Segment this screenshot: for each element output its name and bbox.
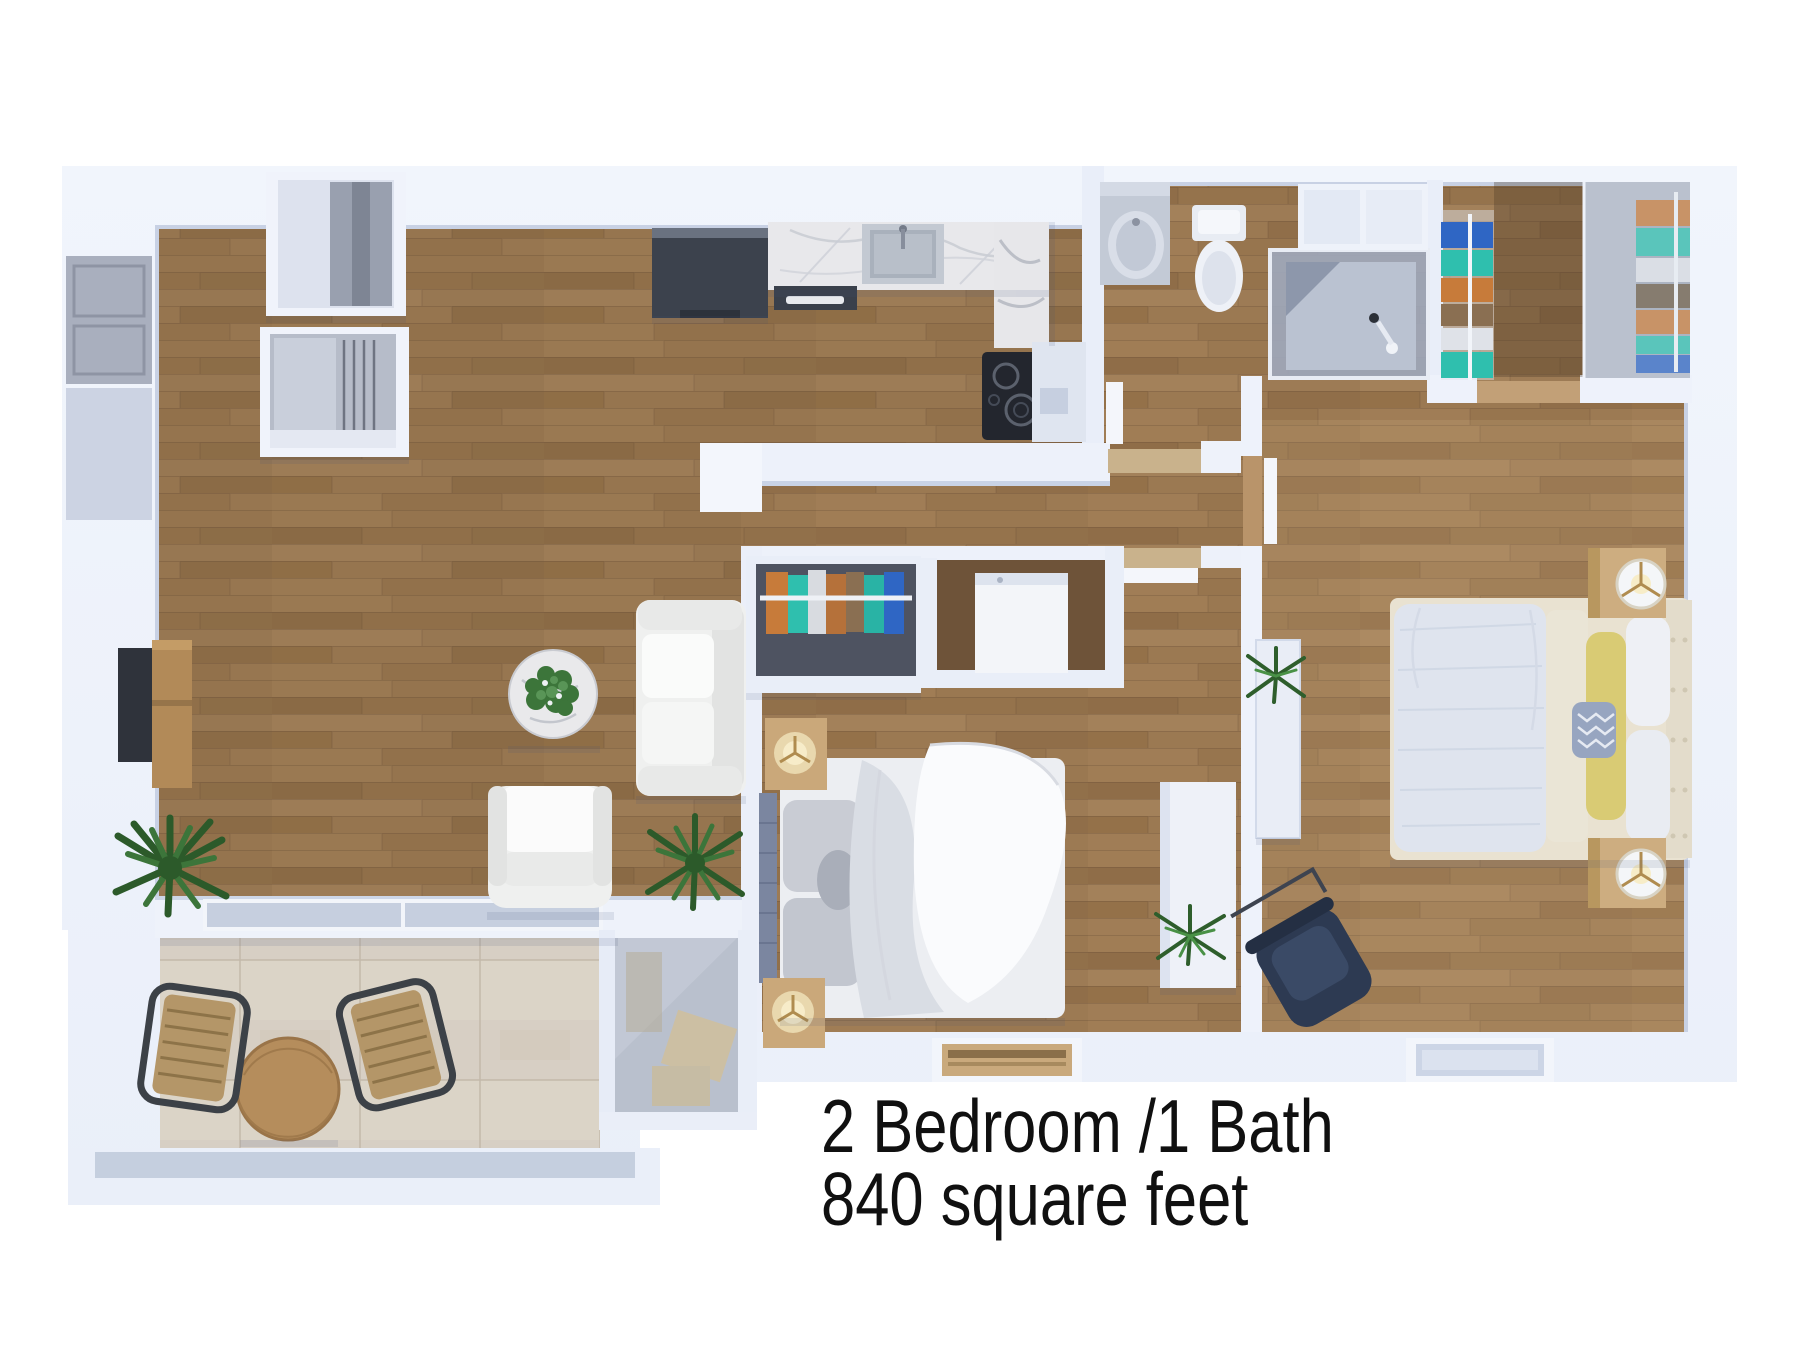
svg-text:840 square feet: 840 square feet (821, 1157, 1248, 1241)
svg-text:2 Bedroom /1 Bath: 2 Bedroom /1 Bath (821, 1084, 1334, 1168)
